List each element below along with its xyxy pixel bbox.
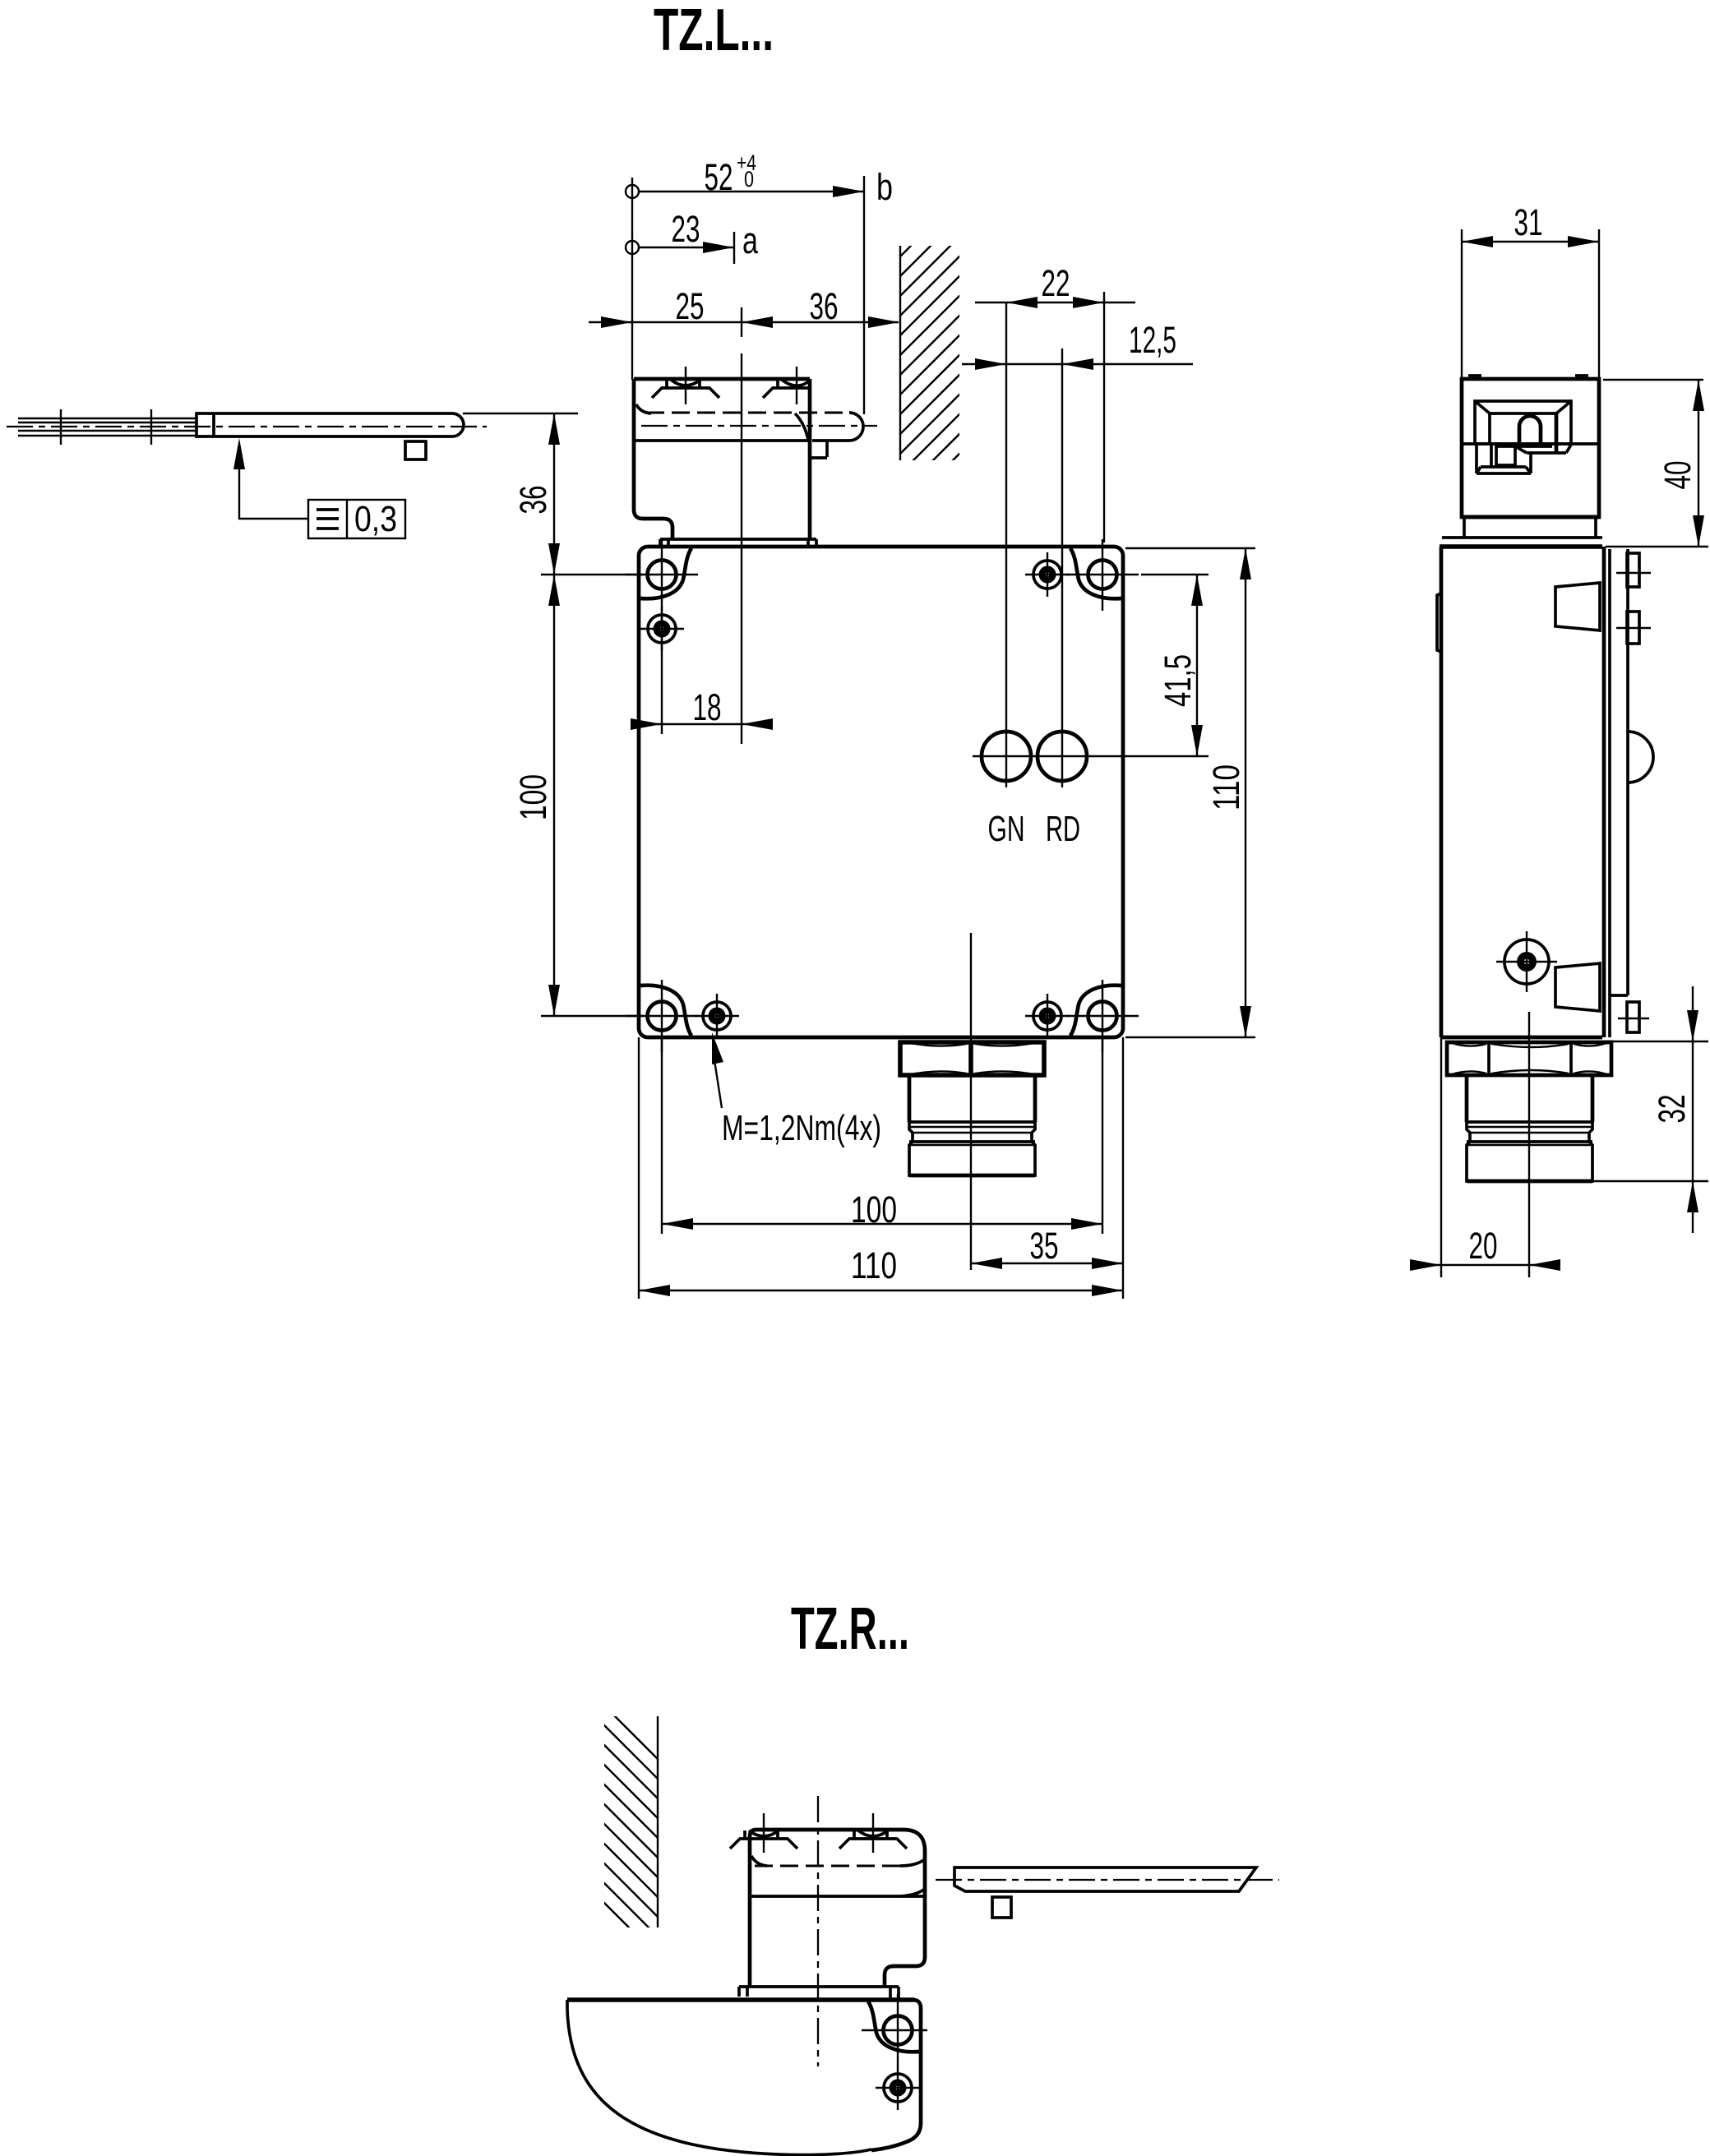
svg-text:12,5: 12,5	[1129, 319, 1176, 361]
svg-text:22: 22	[1042, 262, 1070, 304]
svg-text:52: 52	[705, 156, 733, 198]
svg-text:RD: RD	[1046, 809, 1080, 849]
svg-text:35: 35	[1030, 1225, 1059, 1267]
svg-text:M=1,2Nm(4x): M=1,2Nm(4x)	[722, 1108, 881, 1148]
svg-text:23: 23	[672, 208, 700, 250]
svg-text:40: 40	[1657, 461, 1698, 490]
svg-text:18: 18	[693, 686, 722, 728]
svg-text:36: 36	[810, 285, 839, 327]
svg-text:TZ.L...: TZ.L...	[654, 0, 774, 63]
svg-text:25: 25	[676, 285, 705, 327]
svg-text:31: 31	[1514, 201, 1543, 243]
svg-text:41,5: 41,5	[1157, 654, 1199, 707]
svg-text:36: 36	[512, 486, 554, 515]
svg-text:110: 110	[851, 1244, 897, 1286]
svg-text:TZ.R...: TZ.R...	[791, 1596, 909, 1662]
svg-text:100: 100	[851, 1189, 897, 1230]
svg-text:110: 110	[1205, 764, 1247, 810]
svg-text:0: 0	[744, 167, 754, 192]
svg-text:100: 100	[512, 774, 554, 820]
svg-text:20: 20	[1469, 1225, 1498, 1267]
svg-text:0,3: 0,3	[354, 499, 397, 539]
svg-text:32: 32	[1651, 1095, 1693, 1124]
svg-text:GN: GN	[988, 809, 1025, 849]
svg-text:a: a	[742, 219, 759, 261]
svg-text:b: b	[876, 166, 893, 208]
